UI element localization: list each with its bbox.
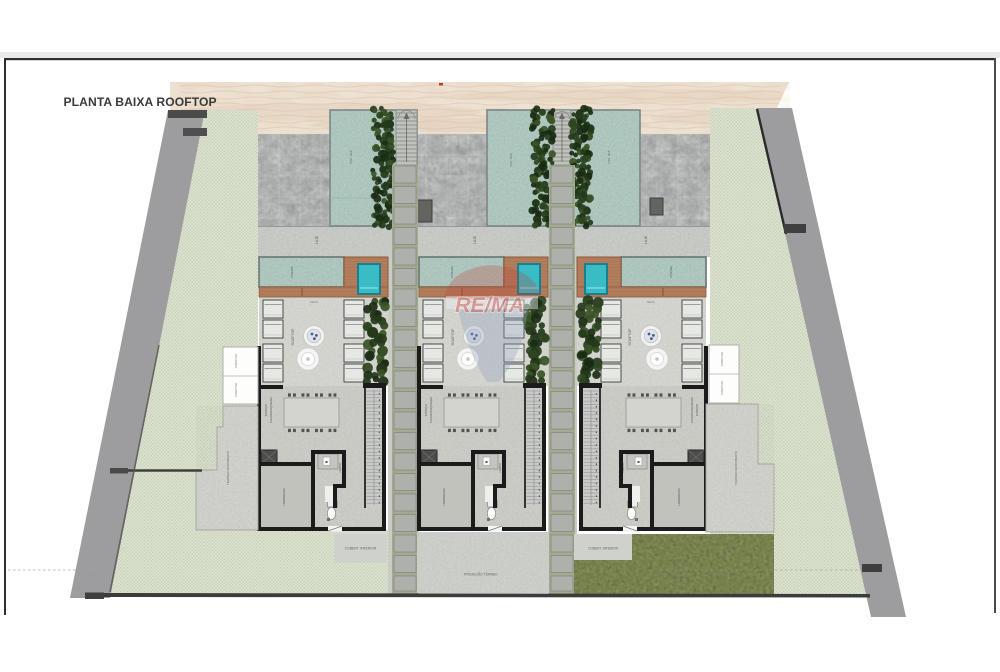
svg-text:COBERTURA: COBERTURA — [235, 353, 238, 368]
svg-text:LAJE: LAJE — [473, 235, 477, 244]
svg-text:COBERT. INFERIOR: COBERT. INFERIOR — [345, 547, 377, 551]
svg-text:ROOFTOP: ROOFTOP — [628, 328, 632, 345]
svg-text:ROOFTOP: ROOFTOP — [291, 328, 295, 345]
svg-text:PISC. MAR: PISC. MAR — [509, 153, 513, 166]
svg-text:ROOFTOP: ROOFTOP — [451, 328, 455, 345]
svg-text:PISCINA: PISCINA — [450, 266, 454, 277]
svg-text:DECK: DECK — [647, 300, 654, 304]
svg-text:PISC. MAR: PISC. MAR — [349, 150, 353, 163]
svg-text:PISCINA: PISCINA — [669, 266, 673, 277]
svg-text:LAVANDERIA: LAVANDERIA — [677, 488, 681, 505]
svg-text:COBERTURA: COBERTURA — [721, 351, 724, 366]
svg-text:LAJE: LAJE — [644, 235, 648, 244]
svg-text:TERRAÇO DESCOBERTO: TERRAÇO DESCOBERTO — [734, 450, 738, 485]
svg-text:LAVABO: LAVABO — [339, 463, 342, 473]
svg-text:COBERTURA: COBERTURA — [721, 380, 724, 395]
svg-text:LAJE: LAJE — [315, 235, 319, 244]
svg-text:LAVANDERIA: LAVANDERIA — [442, 488, 446, 505]
svg-text:LAVANDERIA: LAVANDERIA — [282, 488, 286, 505]
svg-text:CHURRASQUEIRA: CHURRASQUEIRA — [429, 397, 433, 423]
svg-text:DECK: DECK — [310, 300, 317, 304]
svg-text:COBERTURA: COBERTURA — [235, 382, 238, 397]
svg-text:TERRAÇO DESCOBERTO: TERRAÇO DESCOBERTO — [226, 450, 230, 485]
svg-text:LAVABO: LAVABO — [499, 463, 502, 473]
svg-text:CHURRASQUEIRA: CHURRASQUEIRA — [269, 397, 273, 423]
svg-text:PISC. MAR: PISC. MAR — [607, 150, 611, 163]
svg-text:PLANTA BAIXA ROOFTOP: PLANTA BAIXA ROOFTOP — [64, 95, 217, 109]
svg-text:ESPAÇO: ESPAÇO — [264, 403, 268, 416]
svg-text:RE/MA: RE/MA — [455, 293, 524, 317]
svg-text:PISCINA: PISCINA — [290, 266, 294, 277]
svg-text:CHURRASQUEIRA: CHURRASQUEIRA — [690, 397, 694, 423]
svg-text:PROJEÇÃO TÉRREO: PROJEÇÃO TÉRREO — [464, 572, 498, 577]
svg-text:ESPAÇO: ESPAÇO — [695, 403, 699, 416]
svg-text:COBERT. INFERIOR: COBERT. INFERIOR — [588, 547, 619, 551]
svg-text:ESPAÇO: ESPAÇO — [424, 403, 428, 416]
